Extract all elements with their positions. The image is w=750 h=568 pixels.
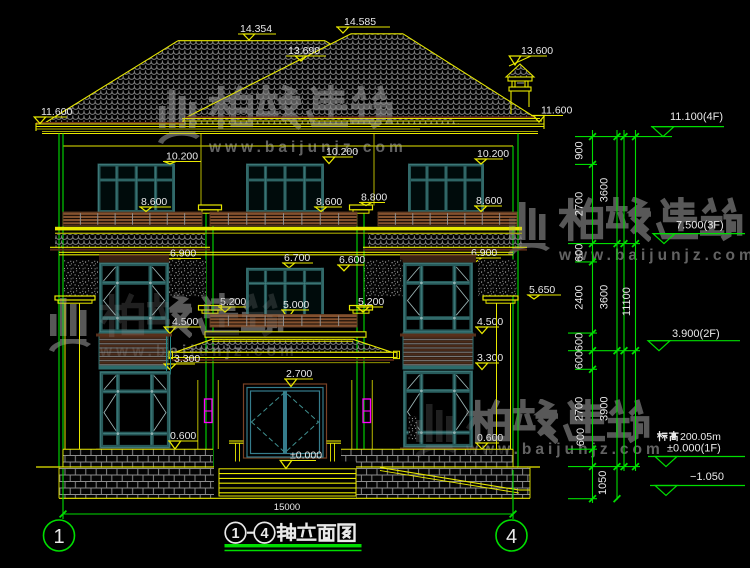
svg-text:6.600: 6.600 [339, 254, 365, 266]
svg-text:14.354: 14.354 [240, 23, 272, 35]
svg-text:2700: 2700 [574, 192, 586, 216]
svg-text:6.900: 6.900 [170, 248, 196, 260]
svg-text:0.600: 0.600 [170, 430, 196, 442]
svg-text:200.05m: 200.05m [680, 431, 721, 443]
svg-text:5.650: 5.650 [529, 284, 555, 296]
svg-text:3.300: 3.300 [477, 352, 503, 364]
svg-text:www.baijunjz.com: www.baijunjz.com [465, 441, 664, 458]
svg-text:8.600: 8.600 [476, 195, 502, 207]
svg-text:13.600: 13.600 [521, 45, 553, 57]
svg-text:6.700: 6.700 [284, 252, 310, 264]
svg-text:1050: 1050 [597, 471, 609, 495]
svg-text:4: 4 [260, 526, 268, 542]
svg-text:600: 600 [574, 333, 586, 351]
svg-text:8.600: 8.600 [141, 196, 167, 208]
svg-text:11.100(4F): 11.100(4F) [670, 111, 723, 123]
svg-text:600: 600 [574, 351, 586, 369]
svg-text:900: 900 [574, 141, 586, 159]
svg-text:600: 600 [575, 428, 587, 446]
svg-text:15000: 15000 [274, 502, 300, 513]
svg-text:−1.050: −1.050 [690, 471, 724, 483]
svg-text:1: 1 [53, 526, 64, 548]
svg-text:10.200: 10.200 [477, 148, 509, 160]
svg-text:4: 4 [506, 526, 517, 548]
svg-text:11.600: 11.600 [41, 106, 72, 118]
svg-text:www.baijunjz.com: www.baijunjz.com [208, 139, 407, 156]
svg-text:www.baijunjz.com: www.baijunjz.com [99, 343, 298, 360]
svg-text:7.500(3F): 7.500(3F) [676, 220, 724, 232]
svg-text:11.600: 11.600 [541, 105, 572, 117]
svg-text:3.900(2F): 3.900(2F) [672, 328, 720, 340]
svg-text:2700: 2700 [574, 397, 586, 421]
svg-text:8.600: 8.600 [316, 196, 342, 208]
svg-text:3600: 3600 [599, 178, 611, 202]
svg-text:4.500: 4.500 [477, 316, 503, 328]
svg-text:13.690: 13.690 [288, 45, 320, 57]
svg-text:600: 600 [574, 244, 586, 262]
svg-text:5.200: 5.200 [358, 296, 384, 308]
svg-text:±0.000: ±0.000 [290, 450, 322, 462]
svg-text:3600: 3600 [599, 285, 611, 309]
svg-text:14.585: 14.585 [344, 16, 376, 28]
svg-text:10.200: 10.200 [166, 151, 198, 163]
svg-text:5.000: 5.000 [283, 299, 309, 311]
svg-text:2.700: 2.700 [286, 368, 312, 380]
svg-text:±0.000(1F): ±0.000(1F) [667, 443, 721, 455]
svg-text:8.800: 8.800 [361, 192, 387, 204]
svg-text:1: 1 [231, 526, 239, 542]
svg-text:3900: 3900 [599, 396, 611, 420]
svg-text:2400: 2400 [574, 285, 586, 309]
svg-text:11100: 11100 [621, 287, 633, 316]
